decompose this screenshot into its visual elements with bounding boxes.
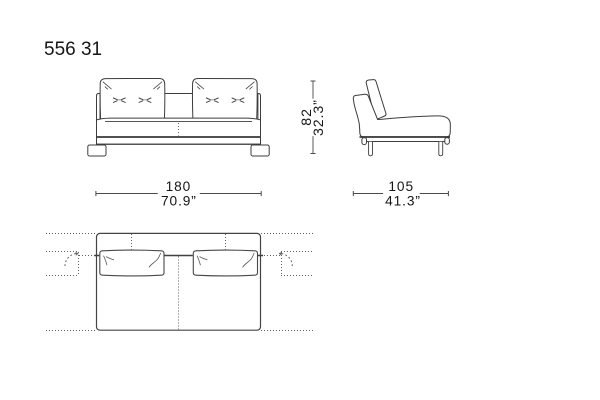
svg-text:180: 180 bbox=[166, 179, 192, 194]
svg-text:105: 105 bbox=[388, 179, 414, 194]
svg-text:556 31: 556 31 bbox=[44, 39, 102, 60]
svg-text:70.9”: 70.9” bbox=[161, 193, 197, 208]
svg-text:41.3”: 41.3” bbox=[385, 193, 421, 208]
svg-text:32.3”: 32.3” bbox=[311, 99, 327, 136]
